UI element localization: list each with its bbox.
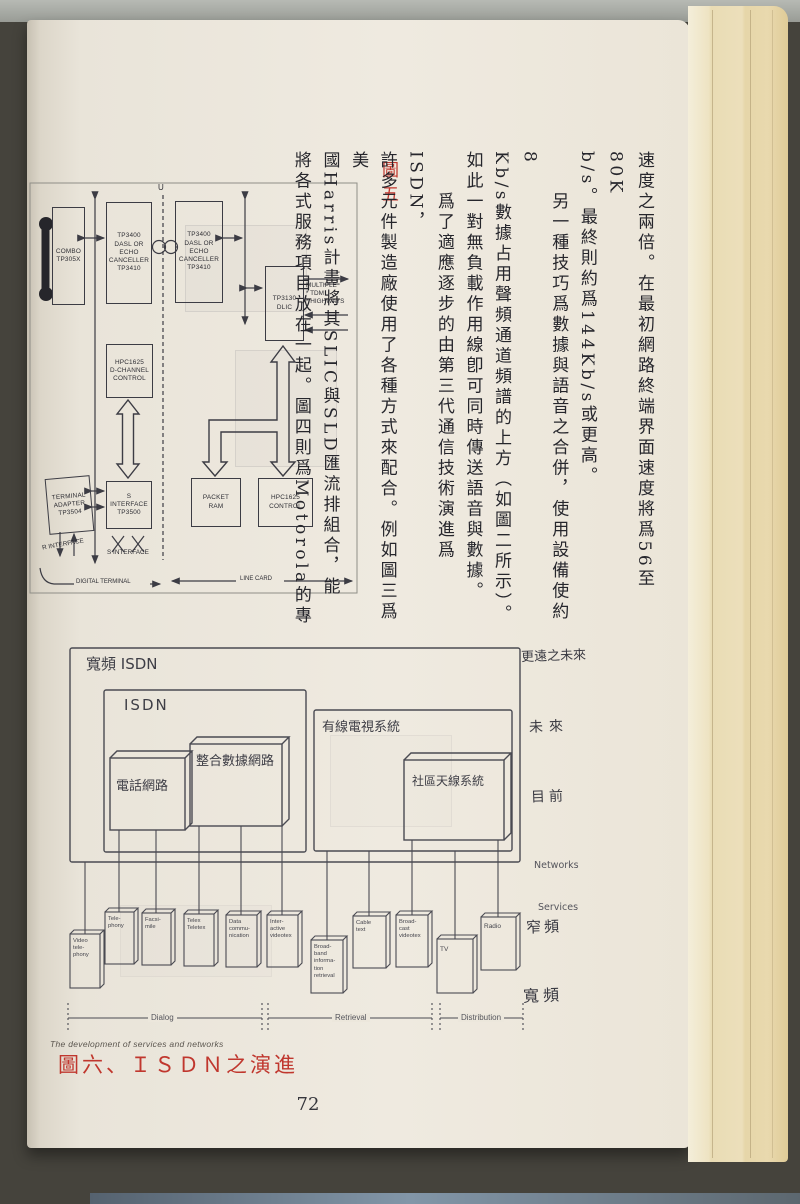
fig6-label-cable-tv-system: 有線電視系統: [322, 716, 400, 735]
fig5-label-line-card: LINE CARD: [240, 576, 272, 584]
book-fore-edge: [688, 6, 788, 1162]
fig6-caption-red: 圖六、ＩＳＤＮ之演進: [58, 1049, 298, 1079]
fig6-label-broadband-isdn: 寬頻 ISDN: [86, 653, 158, 674]
margin-broadband: 寬頻: [523, 981, 564, 1006]
text-column: 許多元件製造廠使用了各種方式來配合。例如圖三爲美: [343, 151, 400, 629]
service-tv: TV: [437, 944, 476, 954]
fig5-label-s-interface: S INTERFACE: [107, 549, 149, 557]
margin-narrowband: 窄頻: [526, 915, 563, 937]
fig5-label-u-reference: U: [158, 183, 164, 193]
bracket-distribution: Distribution: [458, 1013, 504, 1022]
bracket-dialog: Dialog: [148, 1013, 177, 1022]
service-telex-teletex: Telex Teletex: [184, 916, 217, 932]
text-column: Kb/s數據占用聲頻通道頻譜的上方（如圖二所示）。: [486, 151, 515, 629]
text-column: b/s。最終則約爲144Kb/s或更高。: [572, 151, 601, 629]
fig5-box-combo: COMBO TP305X: [52, 207, 85, 305]
text-column: 將各式服務項目放在一起。圖四則爲Motorola的專: [286, 151, 315, 629]
service-facsimile: Facsi- mile: [142, 915, 174, 931]
page-edge-line: [712, 10, 713, 1158]
fig5-box-s-interface: S INTERFACE TP3500: [106, 481, 152, 529]
fig6-label-community-antenna: 社區天線系統: [412, 772, 484, 789]
service-broadband-information-retrieval: Broad- band informa- tion retrieval: [311, 942, 346, 980]
fig5-box-packet-ram: PACKET RAM: [191, 478, 241, 527]
margin-future: 未來: [529, 715, 570, 736]
text-column: 如此一對無負載作用線卽可同時傳送語音與數據。: [458, 151, 487, 629]
fig6-label-isdn: ISDN: [124, 696, 169, 714]
margin-networks: Networks: [534, 860, 579, 871]
service-telephony: Tele- phony: [105, 914, 137, 930]
service-broadcast-videotex: Broad- cast videotex: [396, 917, 431, 941]
fig5-label-digital-terminal: DIGITAL TERMINAL: [76, 579, 131, 587]
margin-services: Services: [538, 902, 578, 913]
fig5-box-terminal-adapter: TERMINAL ADAPTER TP3504: [45, 475, 95, 535]
fig5-box-dasl-left: TP3400 DASL OR ECHO CANCELLER TP3410: [106, 202, 152, 304]
body-text-vertical: 速度之兩倍。在最初網路終端界面速度將爲56至80K b/s。最終則約爲144Kb…: [399, 151, 658, 629]
text-column: 另一種技巧爲數據與語音之合併，使用設備使約8: [515, 151, 572, 629]
text-column: 速度之兩倍。在最初網路終端界面速度將爲56至80K: [601, 151, 658, 629]
fig6-label-telephone-network: 電話網路: [116, 775, 168, 794]
bracket-retrieval: Retrieval: [332, 1013, 370, 1022]
service-cable-text: Cable text: [353, 918, 389, 934]
margin-present: 目前: [531, 785, 568, 806]
text-column: 爲了適應逐步的由第三代通信技術演進爲ISDN，: [401, 151, 458, 629]
service-video-telephony: Video tele- phony: [70, 936, 103, 960]
fig5-box-dasl-right: TP3400 DASL OR ECHO CANCELLER TP3410: [175, 201, 223, 303]
margin-far-future: 更遠之未來: [521, 644, 587, 665]
table-edge-highlight: [90, 1193, 800, 1204]
service-data-communication: Data commu- nication: [226, 917, 260, 941]
fig5-box-d-channel-control: HPC1625 D-CHANNEL CONTROL: [106, 344, 153, 398]
service-interactive-videotex: Inter- active videotex: [267, 917, 301, 941]
page-edge-line: [750, 10, 751, 1158]
photo-backdrop-top: [0, 0, 800, 22]
page-number: 72: [268, 1094, 348, 1115]
fig6-caption-english: The development of services and networks: [50, 1039, 224, 1049]
page-edge-line: [772, 10, 773, 1158]
service-radio: Radio: [481, 921, 519, 931]
text-column: 國Harris計畫將其SLIC與SLD匯流排組合，能: [315, 151, 344, 629]
fig6-label-integrated-data-network: 整合數據網路: [196, 750, 274, 769]
